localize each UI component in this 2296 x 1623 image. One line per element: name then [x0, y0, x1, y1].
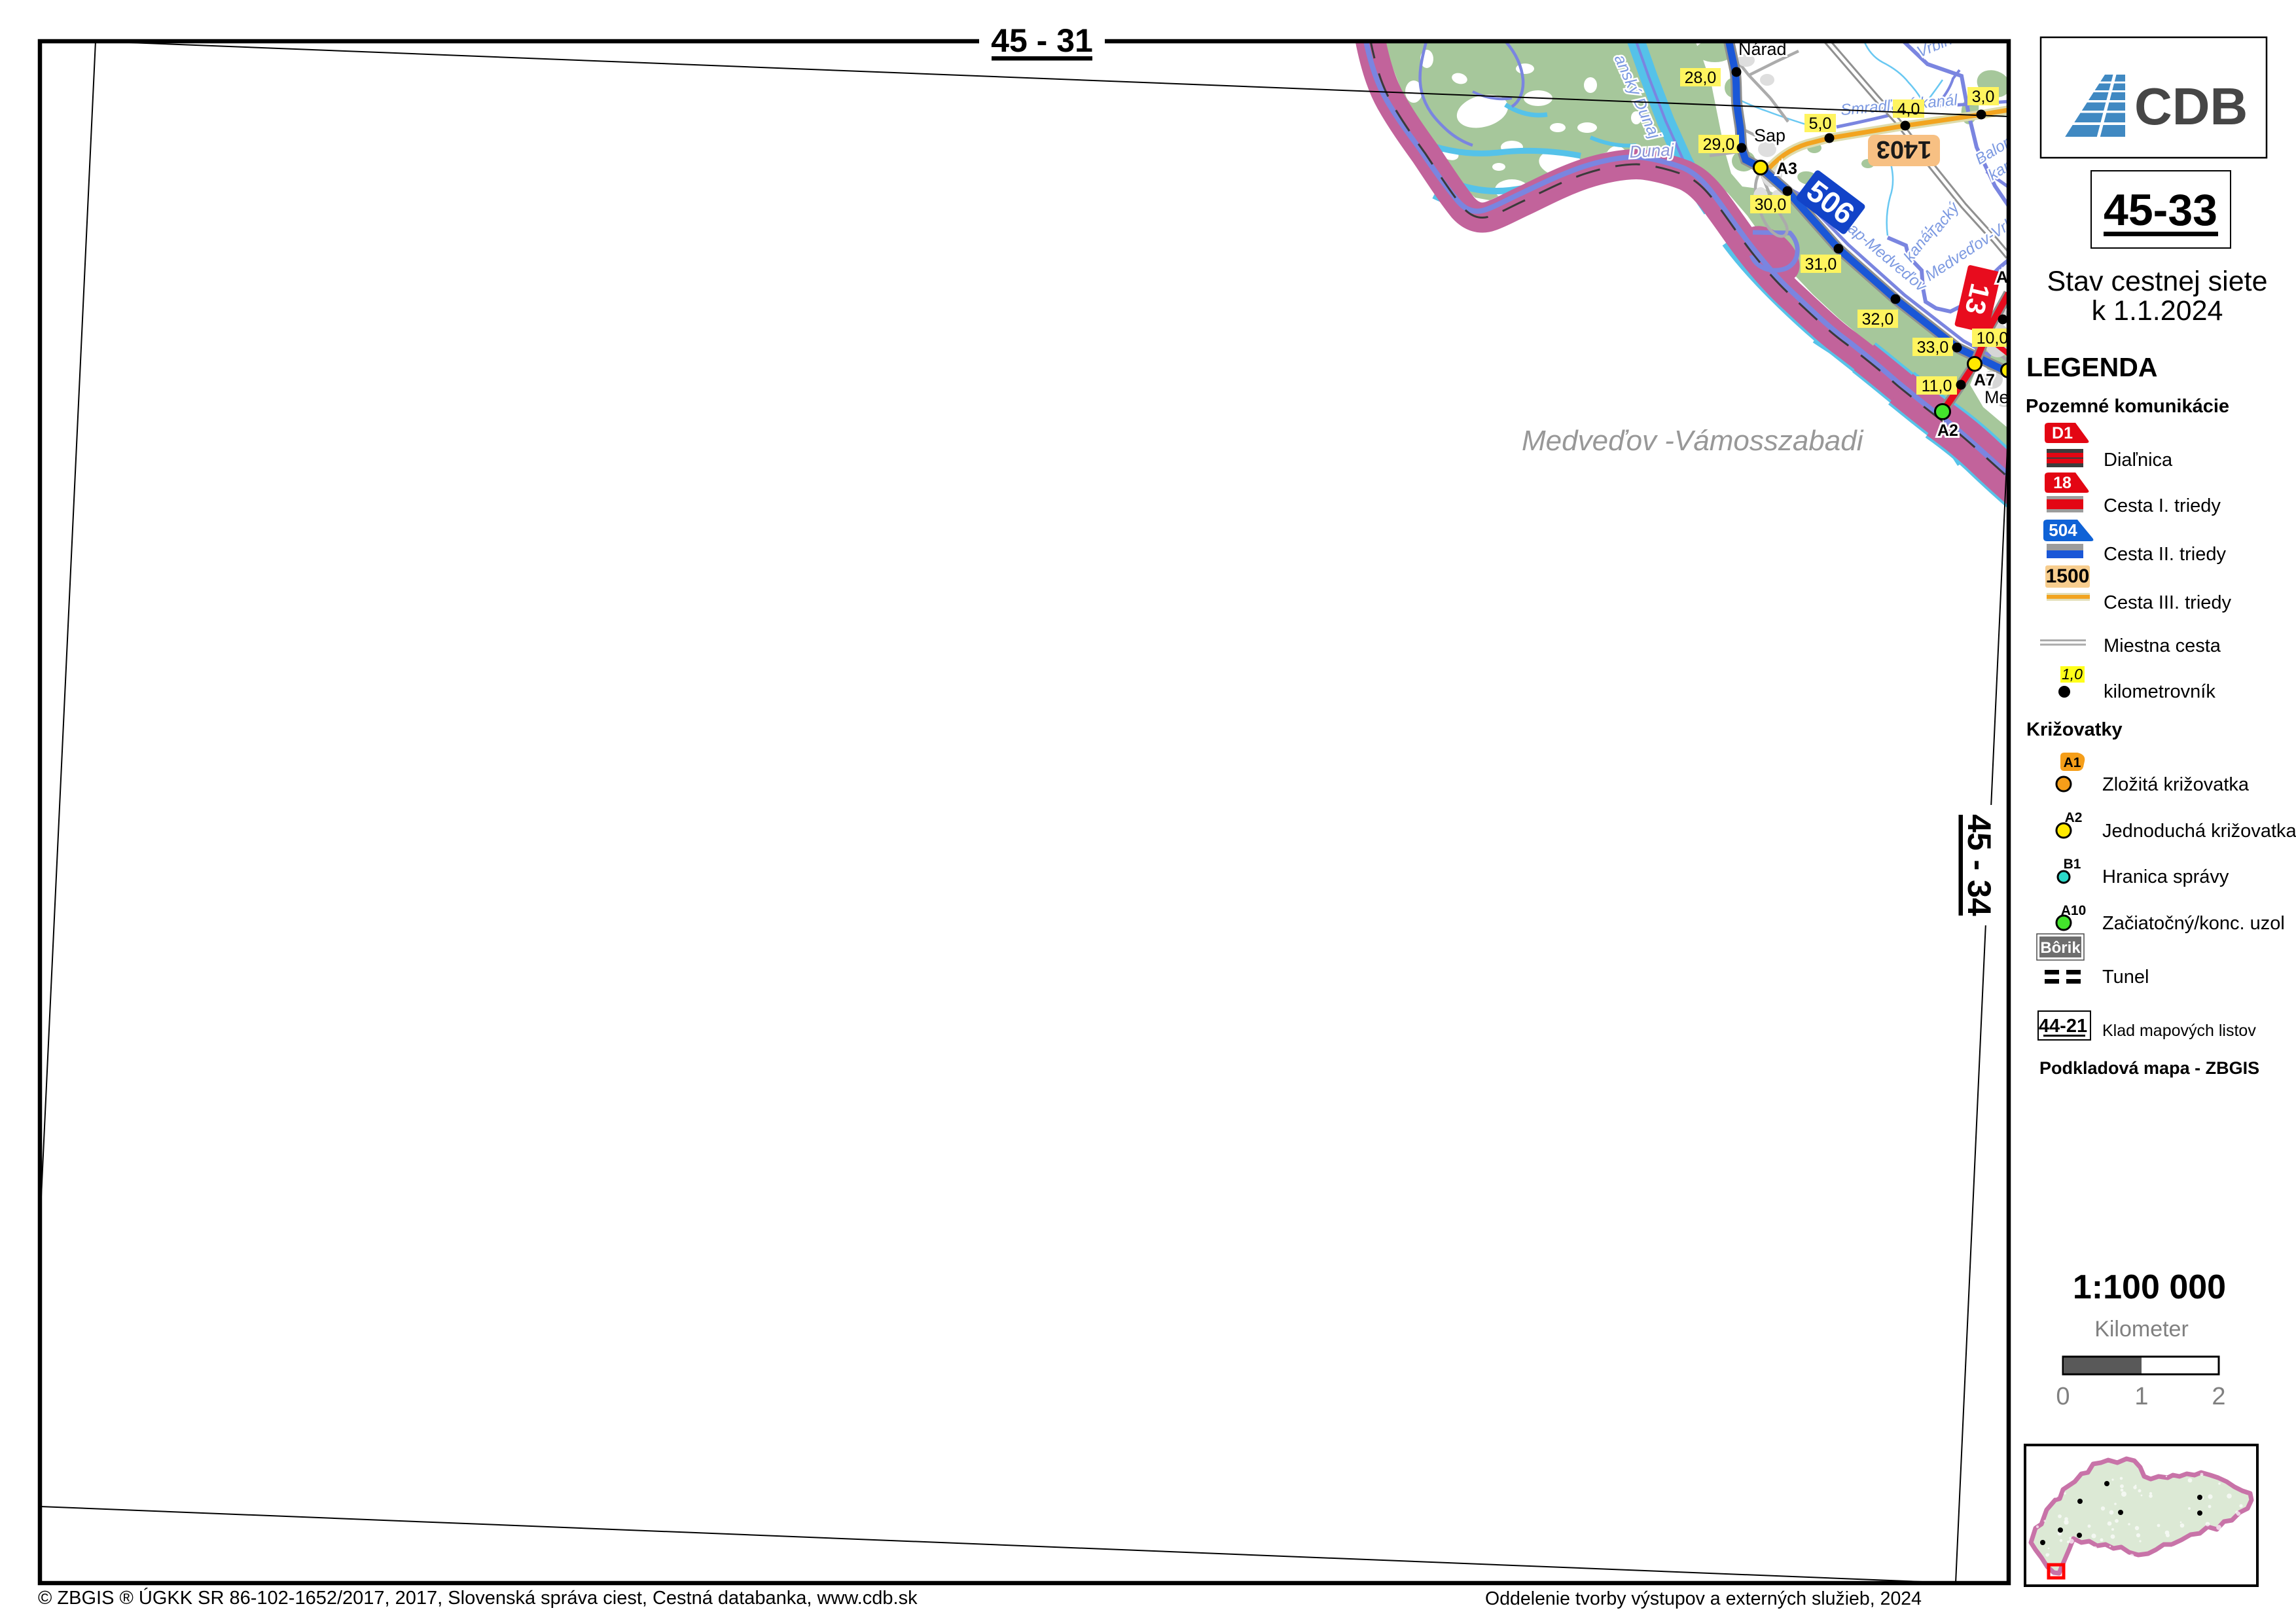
svg-text:A2: A2	[2065, 810, 2083, 825]
svg-text:0: 0	[2056, 1383, 2070, 1410]
svg-text:33,0: 33,0	[1917, 338, 1949, 357]
svg-text:CDB: CDB	[2134, 77, 2248, 135]
svg-text:A7: A7	[1974, 371, 1995, 389]
svg-text:Pozemné komunikácie: Pozemné komunikácie	[2026, 396, 2229, 417]
svg-text:Podkladová mapa - ZBGIS: Podkladová mapa - ZBGIS	[2039, 1058, 2259, 1078]
svg-text:B1: B1	[2064, 857, 2081, 872]
svg-text:45 - 34: 45 - 34	[1961, 814, 1998, 916]
svg-text:1,0: 1,0	[2062, 666, 2083, 683]
svg-text:A2: A2	[1937, 421, 1958, 440]
svg-text:Cesta I. triedy: Cesta I. triedy	[2104, 495, 2221, 516]
svg-text:1403: 1403	[1876, 135, 1932, 163]
svg-text:k 1.1.2024: k 1.1.2024	[2092, 295, 2223, 327]
svg-text:A: A	[1996, 268, 2008, 287]
svg-text:Hranica správy: Hranica správy	[2102, 866, 2229, 887]
svg-text:A1: A1	[2064, 755, 2081, 770]
svg-text:5,0: 5,0	[1809, 115, 1832, 133]
svg-text:kilometrovník: kilometrovník	[2104, 681, 2215, 702]
svg-text:Križovatky: Križovatky	[2026, 719, 2123, 740]
svg-text:Začiatočný/konc. uzol: Začiatočný/konc. uzol	[2102, 913, 2285, 934]
svg-text:LEGENDA: LEGENDA	[2026, 352, 2157, 382]
svg-text:45 - 31: 45 - 31	[991, 22, 1093, 59]
svg-text:A3: A3	[1776, 160, 1797, 178]
svg-text:Cesta II. triedy: Cesta II. triedy	[2104, 544, 2226, 565]
svg-text:4,0: 4,0	[1897, 100, 1920, 118]
svg-text:29,0: 29,0	[1703, 135, 1735, 154]
svg-text:28,0: 28,0	[1685, 69, 1717, 87]
svg-text:Klad mapových listov: Klad mapových listov	[2102, 1022, 2256, 1040]
svg-text:30,0: 30,0	[1755, 196, 1787, 214]
svg-text:Tunel: Tunel	[2102, 967, 2149, 988]
svg-text:1: 1	[2134, 1383, 2148, 1410]
svg-text:32,0: 32,0	[1862, 310, 1894, 329]
svg-text:© ZBGIS ® ÚGKK SR 86-102-1652/: © ZBGIS ® ÚGKK SR 86-102-1652/2017, 2017…	[38, 1587, 918, 1609]
svg-text:Stav cestnej siete: Stav cestnej siete	[2047, 266, 2267, 297]
svg-text:2: 2	[2212, 1383, 2225, 1410]
svg-text:Dunaj: Dunaj	[1629, 139, 1676, 162]
svg-text:31,0: 31,0	[1805, 255, 1837, 274]
svg-text:Oddelenie tvorby výstupov a ex: Oddelenie tvorby výstupov a externých sl…	[1485, 1588, 1922, 1609]
svg-text:44-21: 44-21	[2039, 1016, 2087, 1037]
svg-text:10,0: 10,0	[1977, 329, 2009, 348]
svg-text:45-33: 45-33	[2104, 185, 2217, 235]
svg-text:11,0: 11,0	[1922, 377, 1952, 395]
svg-text:Sap: Sap	[1754, 126, 1785, 145]
svg-text:504: 504	[2049, 520, 2077, 540]
svg-text:3,0: 3,0	[1972, 88, 1995, 106]
svg-text:D1: D1	[2052, 424, 2073, 442]
svg-text:Cesta III. triedy: Cesta III. triedy	[2104, 592, 2232, 613]
svg-text:Bôrik: Bôrik	[2040, 939, 2081, 957]
svg-text:Jednoduchá križovatka: Jednoduchá križovatka	[2102, 821, 2296, 842]
svg-text:1:100 000: 1:100 000	[2073, 1268, 2226, 1306]
svg-text:Medveďov -Vámosszabadi: Medveďov -Vámosszabadi	[1522, 425, 1864, 457]
svg-text:18: 18	[2053, 474, 2072, 492]
svg-text:Diaľnica: Diaľnica	[2104, 450, 2173, 471]
svg-text:Miestna cesta: Miestna cesta	[2104, 635, 2221, 656]
svg-text:Kilometer: Kilometer	[2094, 1317, 2189, 1342]
svg-text:Zložitá križovatka: Zložitá križovatka	[2102, 774, 2250, 795]
svg-text:1500: 1500	[2046, 565, 2090, 587]
